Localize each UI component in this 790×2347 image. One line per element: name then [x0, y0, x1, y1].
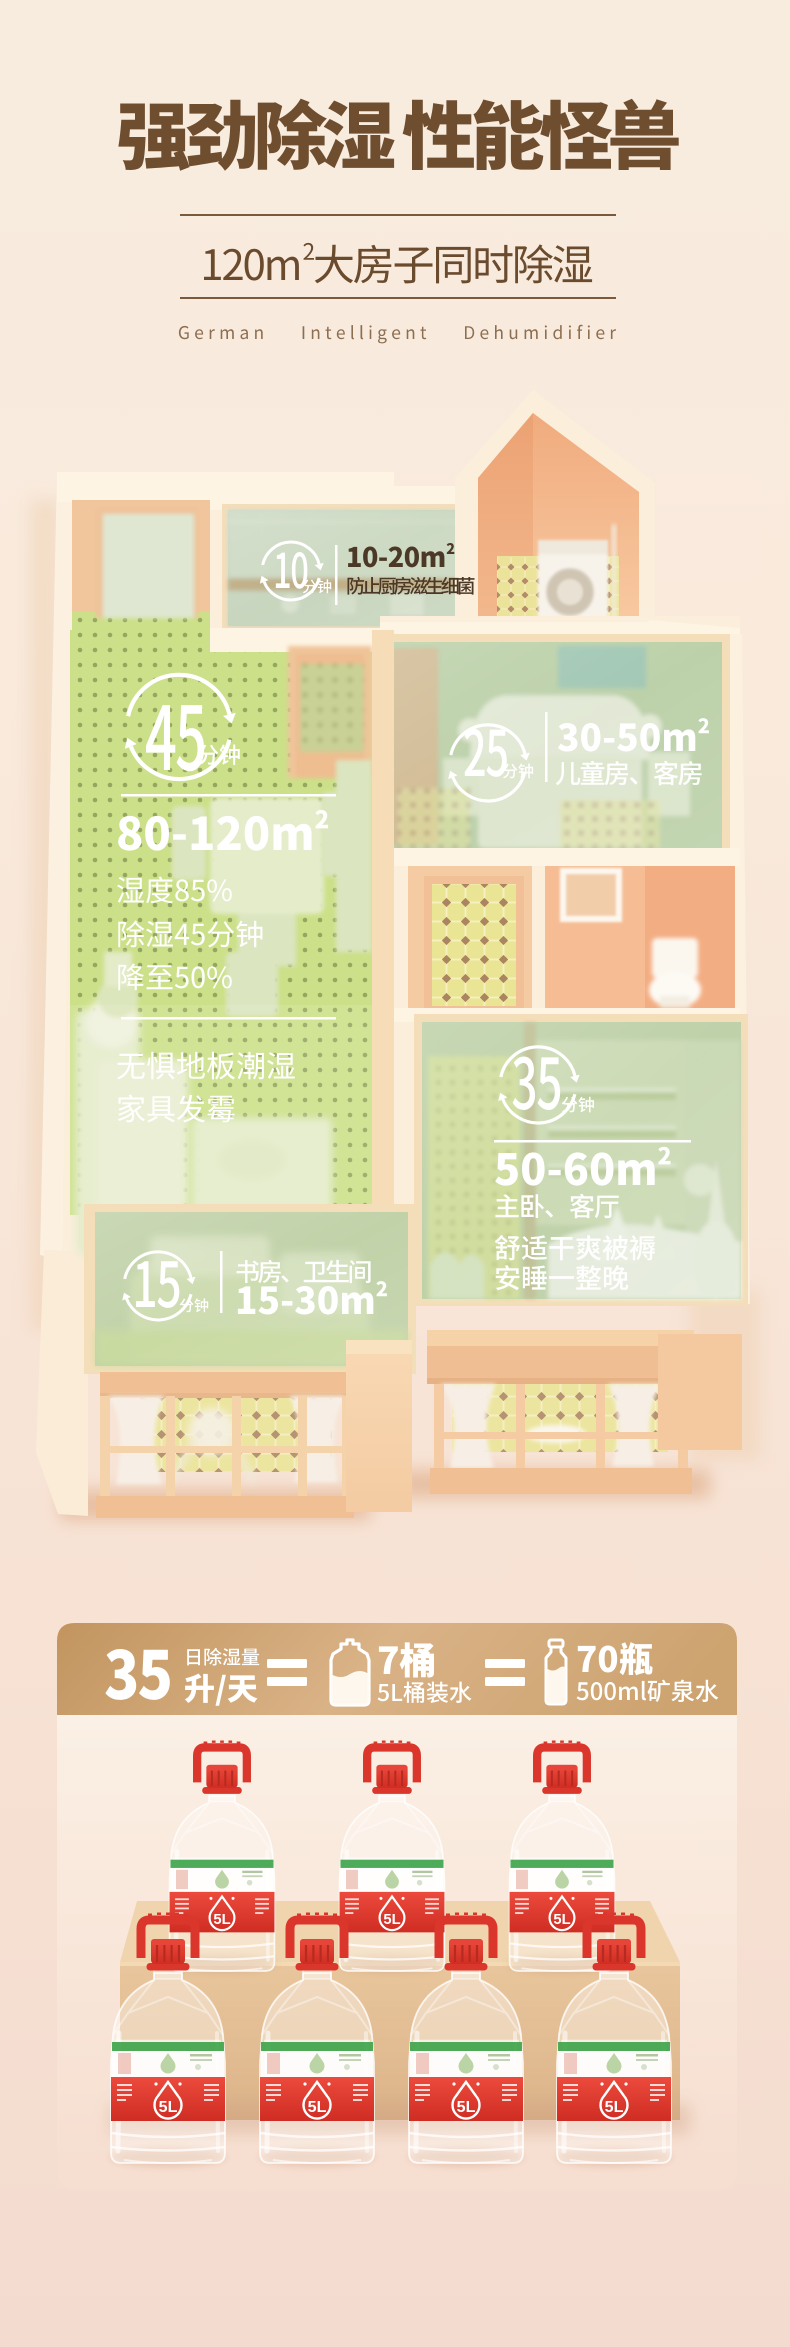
svg-text:5L: 5L: [308, 2099, 327, 2116]
svg-text:5L: 5L: [553, 1912, 570, 1928]
svg-text:5L: 5L: [213, 1912, 230, 1928]
svg-text:5L: 5L: [159, 2099, 178, 2116]
svg-text:5L: 5L: [457, 2099, 476, 2116]
svg-text:5L: 5L: [605, 2099, 624, 2116]
svg-text:5L: 5L: [383, 1912, 400, 1928]
